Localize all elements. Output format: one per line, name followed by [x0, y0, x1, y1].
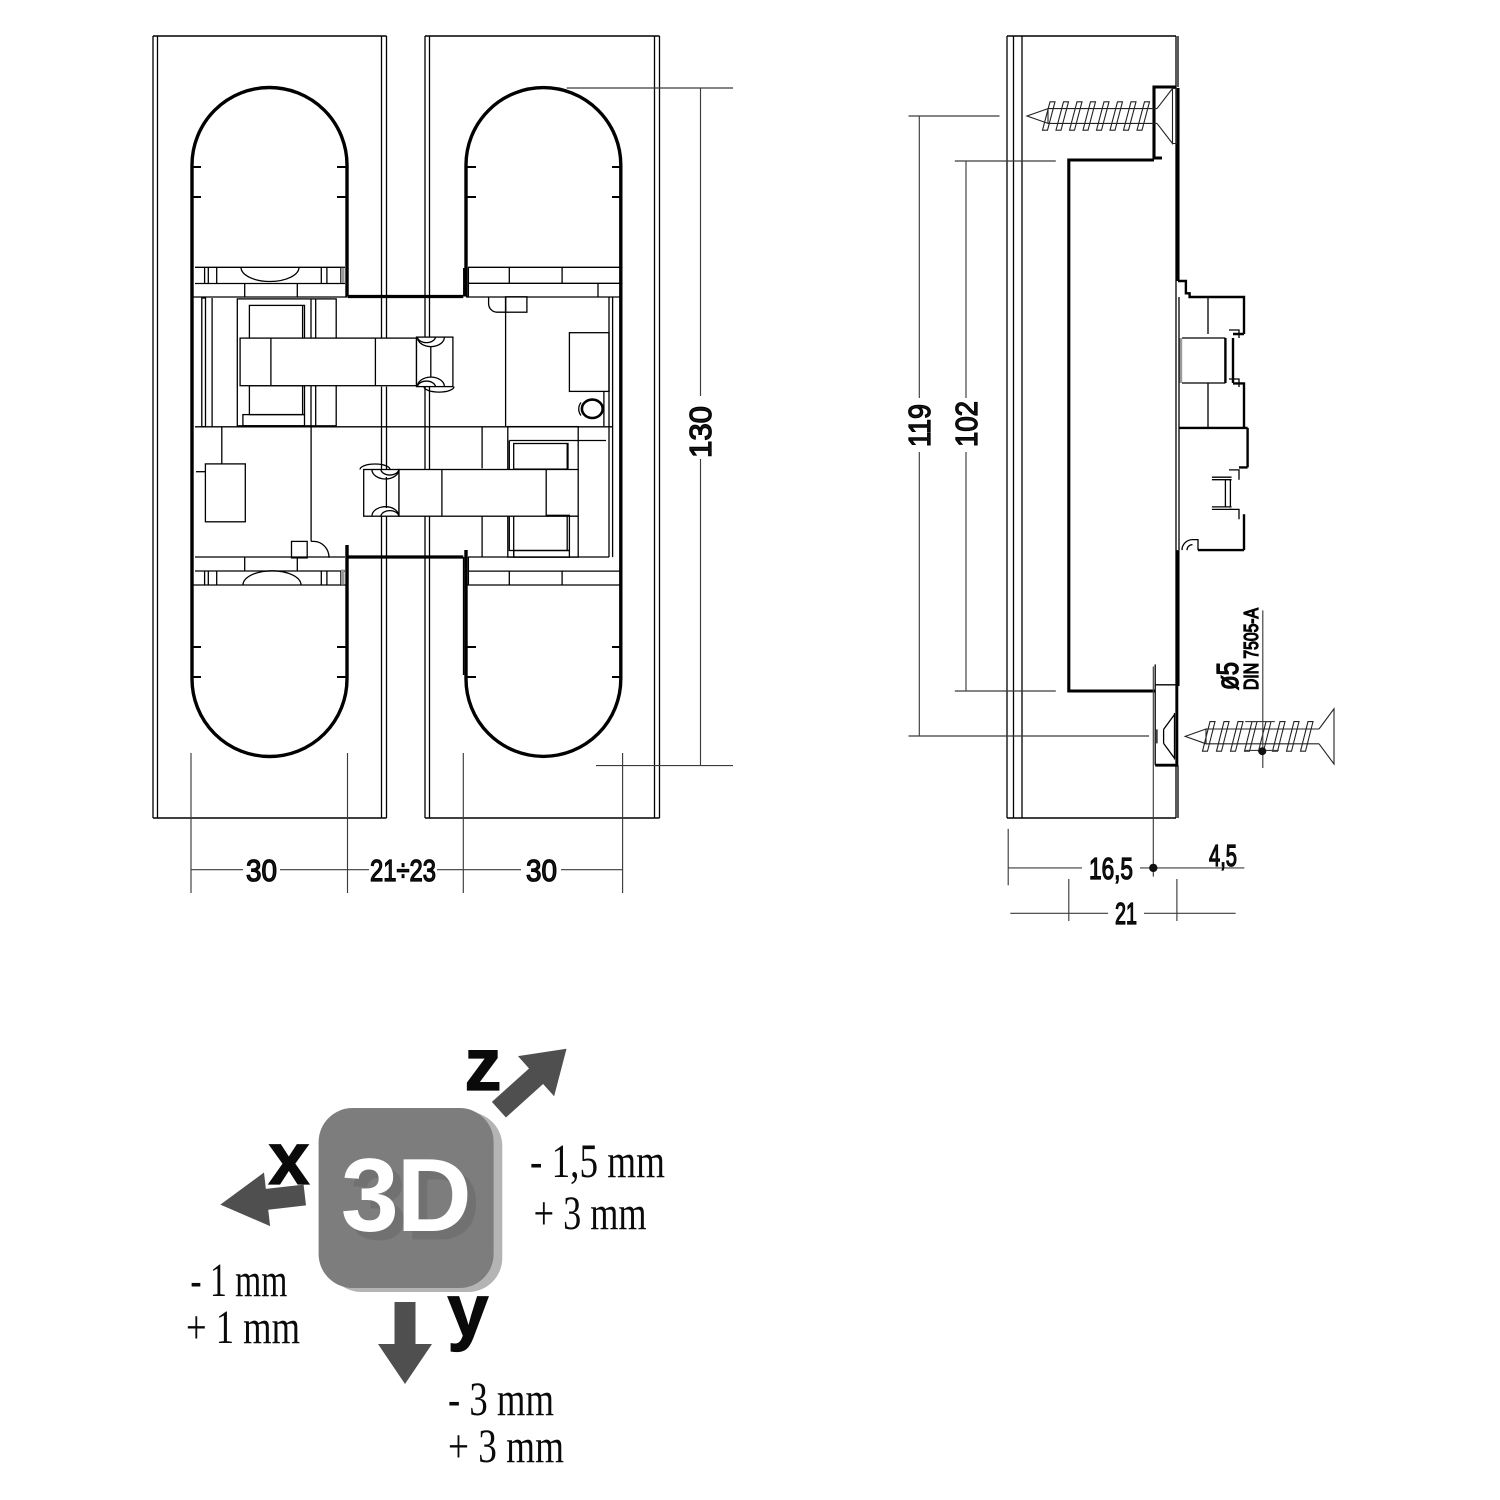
svg-text:+ 3 mm: + 3 mm: [448, 1420, 564, 1473]
svg-text:- 3 mm: - 3 mm: [448, 1373, 554, 1426]
svg-text:+ 1 mm: + 1 mm: [186, 1301, 300, 1354]
svg-text:102: 102: [949, 401, 984, 447]
svg-text:130: 130: [683, 406, 718, 458]
svg-text:+ 3 mm: + 3 mm: [534, 1187, 647, 1240]
svg-text:21÷23: 21÷23: [370, 853, 436, 888]
svg-text:DIN 7505-A: DIN 7505-A: [1241, 607, 1263, 690]
svg-text:21: 21: [1115, 896, 1137, 931]
svg-text:30: 30: [246, 853, 277, 888]
svg-text:4,5: 4,5: [1209, 838, 1237, 873]
svg-text:30: 30: [526, 853, 557, 888]
svg-text:ø5: ø5: [1210, 662, 1245, 690]
svg-text:119: 119: [902, 404, 937, 447]
svg-text:- 1,5 mm: - 1,5 mm: [530, 1135, 665, 1188]
svg-text:z: z: [465, 1023, 502, 1106]
svg-text:16,5: 16,5: [1089, 851, 1133, 886]
svg-text:y: y: [447, 1269, 488, 1352]
svg-text:- 1 mm: - 1 mm: [190, 1254, 287, 1307]
svg-text:3D: 3D: [341, 1138, 470, 1254]
svg-text:x: x: [268, 1117, 309, 1200]
